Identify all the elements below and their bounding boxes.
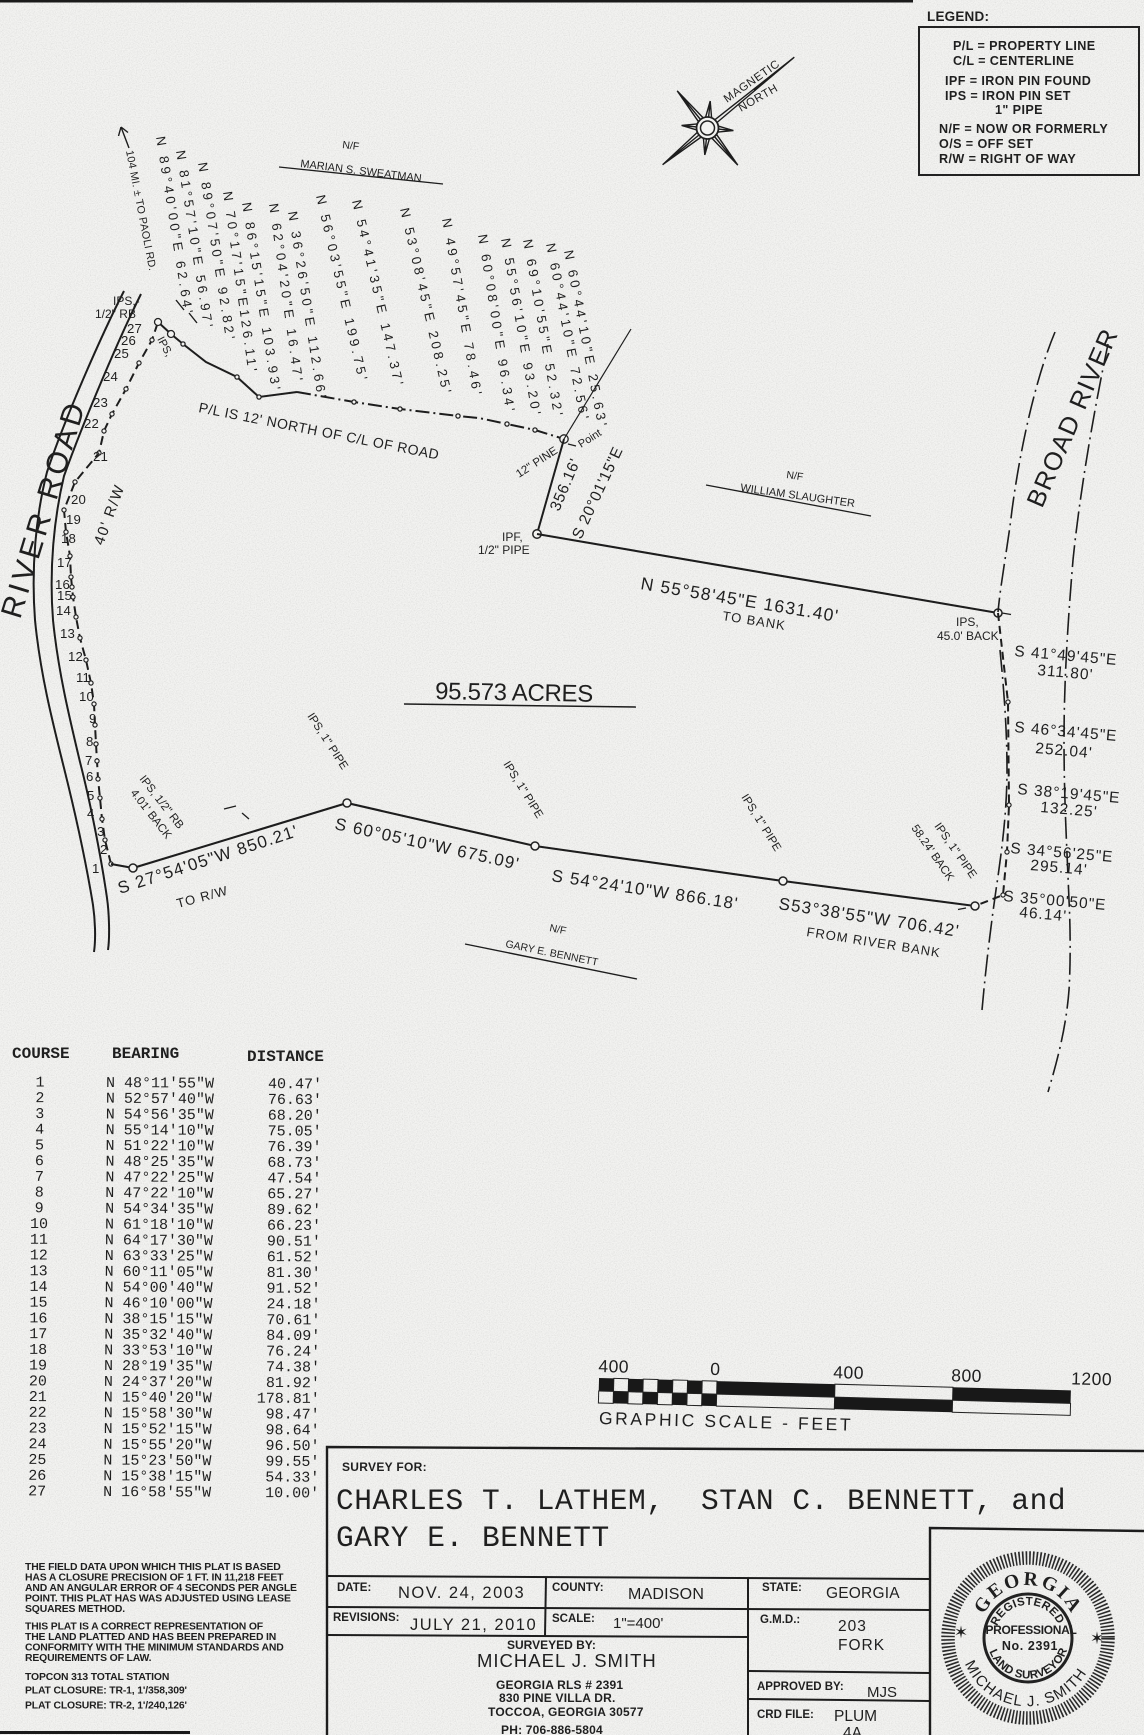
- svg-text:54.33': 54.33': [265, 1469, 319, 1486]
- svg-text:10: 10: [79, 689, 94, 704]
- svg-text:20: 20: [29, 1373, 47, 1390]
- svg-text:400: 400: [598, 1356, 629, 1377]
- svg-text:THE FIELD DATA UPON WHICH THIS: THE FIELD DATA UPON WHICH THIS PLAT IS B…: [25, 1562, 281, 1573]
- svg-text:13: 13: [30, 1263, 48, 1280]
- svg-text:GARY E. BENNETT: GARY E. BENNETT: [336, 1521, 610, 1555]
- svg-text:8: 8: [86, 734, 94, 749]
- svg-text:N/F: N/F: [786, 469, 804, 483]
- svg-text:4: 4: [35, 1122, 44, 1139]
- svg-text:IPS = IRON PIN SET: IPS = IRON PIN SET: [945, 89, 1071, 103]
- svg-text:LEGEND:: LEGEND:: [927, 9, 989, 24]
- svg-text:15: 15: [29, 1295, 47, 1312]
- svg-text:45.0' BACK: 45.0' BACK: [937, 629, 999, 643]
- svg-text:24: 24: [103, 369, 118, 384]
- svg-text:24.18': 24.18': [266, 1296, 320, 1313]
- svg-text:18: 18: [61, 531, 76, 546]
- svg-text:1200: 1200: [1071, 1368, 1112, 1389]
- svg-text:REQUIREMENTS OF LAW.: REQUIREMENTS OF LAW.: [25, 1653, 152, 1664]
- svg-text:✶: ✶: [954, 1623, 968, 1642]
- svg-text:PROFESSIONAL: PROFESSIONAL: [985, 1623, 1076, 1637]
- svg-text:FORK: FORK: [838, 1637, 885, 1654]
- svg-text:3: 3: [97, 824, 105, 839]
- svg-text:96.50': 96.50': [265, 1438, 319, 1455]
- svg-text:N/F: N/F: [342, 139, 360, 153]
- svg-text:19: 19: [66, 512, 81, 527]
- svg-text:98.47': 98.47': [266, 1406, 320, 1423]
- svg-text:20: 20: [71, 492, 86, 507]
- svg-text:2: 2: [35, 1090, 44, 1107]
- svg-text:7: 7: [35, 1169, 44, 1186]
- svg-text:10: 10: [30, 1216, 48, 1233]
- svg-text:G.M.D.:: G.M.D.:: [760, 1614, 800, 1626]
- svg-text:GEORGIA RLS # 2391: GEORGIA RLS # 2391: [496, 1678, 623, 1692]
- svg-text:6: 6: [86, 769, 94, 784]
- svg-text:1: 1: [35, 1074, 44, 1091]
- svg-text:2: 2: [100, 842, 108, 857]
- svg-text:N 16°58'55"W: N 16°58'55"W: [103, 1484, 211, 1502]
- svg-text:1: 1: [92, 861, 100, 876]
- svg-text:APPROVED BY:: APPROVED BY:: [757, 1681, 844, 1693]
- svg-text:HAS A CLOSURE PRECISION OF 1 F: HAS A CLOSURE PRECISION OF 1 FT. IN 11,2…: [25, 1573, 284, 1584]
- svg-text:14: 14: [30, 1279, 48, 1296]
- svg-text:10.00': 10.00': [265, 1485, 319, 1502]
- svg-text:203: 203: [838, 1618, 867, 1635]
- svg-text:MJS: MJS: [867, 1684, 897, 1701]
- svg-text:17: 17: [29, 1326, 47, 1343]
- svg-text:12: 12: [30, 1247, 48, 1264]
- svg-text:400: 400: [833, 1362, 864, 1383]
- svg-text:6: 6: [35, 1153, 44, 1170]
- svg-text:1/2" RB: 1/2" RB: [95, 307, 136, 321]
- svg-text:5: 5: [35, 1137, 44, 1154]
- svg-text:99.55': 99.55': [265, 1454, 319, 1471]
- svg-text:23: 23: [93, 395, 108, 410]
- svg-text:76.39': 76.39': [268, 1139, 322, 1156]
- svg-text:SQUARES METHOD.: SQUARES METHOD.: [25, 1604, 125, 1615]
- svg-text:14: 14: [56, 603, 71, 618]
- svg-text:COUNTY:: COUNTY:: [552, 1582, 604, 1594]
- svg-text:POINT. THIS PLAT HAS WAS ADJUS: POINT. THIS PLAT HAS WAS ADJUSTED USING …: [25, 1594, 291, 1605]
- svg-text:800: 800: [951, 1365, 982, 1386]
- svg-text:9: 9: [35, 1200, 44, 1217]
- svg-text:1/2" PIPE: 1/2" PIPE: [478, 543, 530, 557]
- svg-text:0: 0: [710, 1359, 721, 1379]
- svg-text:CONFORMITY WITH THE MINIMUM ST: CONFORMITY WITH THE MINIMUM STANDARDS AN…: [25, 1643, 284, 1654]
- svg-text:SURVEY FOR:: SURVEY FOR:: [342, 1460, 427, 1474]
- svg-text:22: 22: [29, 1405, 47, 1422]
- svg-text:24: 24: [28, 1436, 46, 1453]
- svg-text:74.38': 74.38': [266, 1359, 320, 1376]
- svg-text:IPF,: IPF,: [502, 530, 523, 544]
- svg-text:IPS,-: IPS,-: [113, 294, 140, 308]
- svg-text:11: 11: [30, 1232, 48, 1249]
- svg-text:SCALE:: SCALE:: [552, 1613, 595, 1625]
- svg-text:4: 4: [87, 806, 95, 821]
- svg-text:R/W = RIGHT OF WAY: R/W = RIGHT OF WAY: [939, 152, 1076, 166]
- svg-text:DISTANCE: DISTANCE: [247, 1048, 324, 1066]
- svg-text:25: 25: [114, 346, 129, 361]
- svg-text:REVISIONS:: REVISIONS:: [333, 1612, 399, 1624]
- svg-text:TOCCOA, GEORGIA 30577: TOCCOA, GEORGIA 30577: [488, 1705, 644, 1719]
- svg-text:76.63': 76.63': [268, 1092, 322, 1109]
- svg-text:12: 12: [68, 649, 83, 664]
- svg-text:13: 13: [60, 626, 75, 641]
- svg-text:TOPCON 313 TOTAL STATION: TOPCON 313 TOTAL STATION: [25, 1672, 169, 1683]
- svg-text:O/S = OFF SET: O/S = OFF SET: [939, 137, 1033, 151]
- svg-text:3: 3: [35, 1106, 44, 1123]
- svg-text:PLAT CLOSURE: TR-1, 1'/358,309: PLAT CLOSURE: TR-1, 1'/358,309': [25, 1686, 187, 1697]
- svg-text:COURSE: COURSE: [12, 1045, 70, 1063]
- svg-text:✶: ✶: [1090, 1629, 1104, 1648]
- svg-text:90.51': 90.51': [267, 1233, 321, 1250]
- svg-text:26: 26: [28, 1468, 46, 1485]
- svg-text:IPS,: IPS,: [956, 615, 979, 629]
- svg-text:P/L = PROPERTY LINE: P/L = PROPERTY LINE: [953, 39, 1096, 53]
- svg-text:21: 21: [29, 1389, 47, 1406]
- svg-text:7: 7: [85, 753, 93, 768]
- svg-text:THE LAND PLATTED AND HAS BEEN: THE LAND PLATTED AND HAS BEEN PREPARED I…: [25, 1632, 276, 1643]
- svg-text:23: 23: [29, 1421, 47, 1438]
- svg-text:No. 2391: No. 2391: [1002, 1639, 1058, 1653]
- svg-text:BEARING: BEARING: [112, 1045, 179, 1063]
- svg-text:1"=400': 1"=400': [613, 1615, 663, 1632]
- svg-text:NOV. 24, 2003: NOV. 24, 2003: [398, 1584, 525, 1602]
- svg-text:8: 8: [35, 1185, 44, 1202]
- svg-text:81.30': 81.30': [267, 1265, 321, 1282]
- svg-text:25: 25: [28, 1452, 46, 1469]
- svg-text:STATE:: STATE:: [762, 1582, 802, 1594]
- svg-text:4A: 4A: [843, 1725, 863, 1735]
- svg-text:AND AN ANGULAR ERROR OF 4 SECO: AND AN ANGULAR ERROR OF 4 SECONDS PER AN…: [25, 1583, 297, 1594]
- svg-text:1" PIPE: 1" PIPE: [995, 103, 1043, 117]
- svg-text:GEORGIA: GEORGIA: [826, 1585, 900, 1602]
- svg-text:CHARLES T. LATHEM, STAN C. BE: CHARLES T. LATHEM, STAN C. BENNETT, and: [336, 1484, 1066, 1518]
- svg-text:27: 27: [28, 1483, 46, 1500]
- svg-text:61.52': 61.52': [267, 1249, 321, 1266]
- svg-text:21: 21: [93, 449, 108, 464]
- svg-text:MADISON: MADISON: [628, 1586, 704, 1603]
- svg-text:22: 22: [84, 416, 99, 431]
- svg-text:PH: 706-886-5804: PH: 706-886-5804: [501, 1723, 603, 1735]
- svg-text:PLUM: PLUM: [834, 1708, 877, 1725]
- svg-text:27: 27: [127, 321, 142, 336]
- svg-text:PLAT CLOSURE: TR-2, 1'/240,126: PLAT CLOSURE: TR-2, 1'/240,126': [25, 1701, 187, 1712]
- svg-text:THIS PLAT IS A CORRECT REPRESE: THIS PLAT IS A CORRECT REPRESENTATION OF: [25, 1622, 263, 1633]
- svg-text:DATE:: DATE:: [337, 1582, 371, 1594]
- svg-text:18: 18: [29, 1342, 47, 1359]
- svg-text:16: 16: [55, 577, 70, 592]
- svg-text:16: 16: [29, 1310, 47, 1327]
- svg-text:N/F = NOW OR FORMERLY: N/F = NOW OR FORMERLY: [939, 122, 1108, 136]
- svg-text:CRD FILE:: CRD FILE:: [757, 1709, 814, 1721]
- svg-text:17: 17: [57, 555, 72, 570]
- svg-text:19: 19: [29, 1358, 47, 1375]
- svg-text:MICHAEL J. SMITH: MICHAEL J. SMITH: [477, 1650, 657, 1671]
- svg-text:9: 9: [89, 711, 97, 726]
- svg-text:95.573 ACRES: 95.573 ACRES: [435, 678, 593, 708]
- svg-text:830 PINE VILLA DR.: 830 PINE VILLA DR.: [499, 1691, 616, 1705]
- svg-text:89.62': 89.62': [267, 1202, 321, 1219]
- svg-text:C/L = CENTERLINE: C/L = CENTERLINE: [953, 54, 1074, 68]
- svg-text:JULY 21, 2010: JULY 21, 2010: [410, 1616, 537, 1634]
- svg-text:11: 11: [76, 670, 90, 685]
- svg-text:IPF = IRON PIN FOUND: IPF = IRON PIN FOUND: [945, 74, 1091, 88]
- svg-text:5: 5: [87, 788, 95, 803]
